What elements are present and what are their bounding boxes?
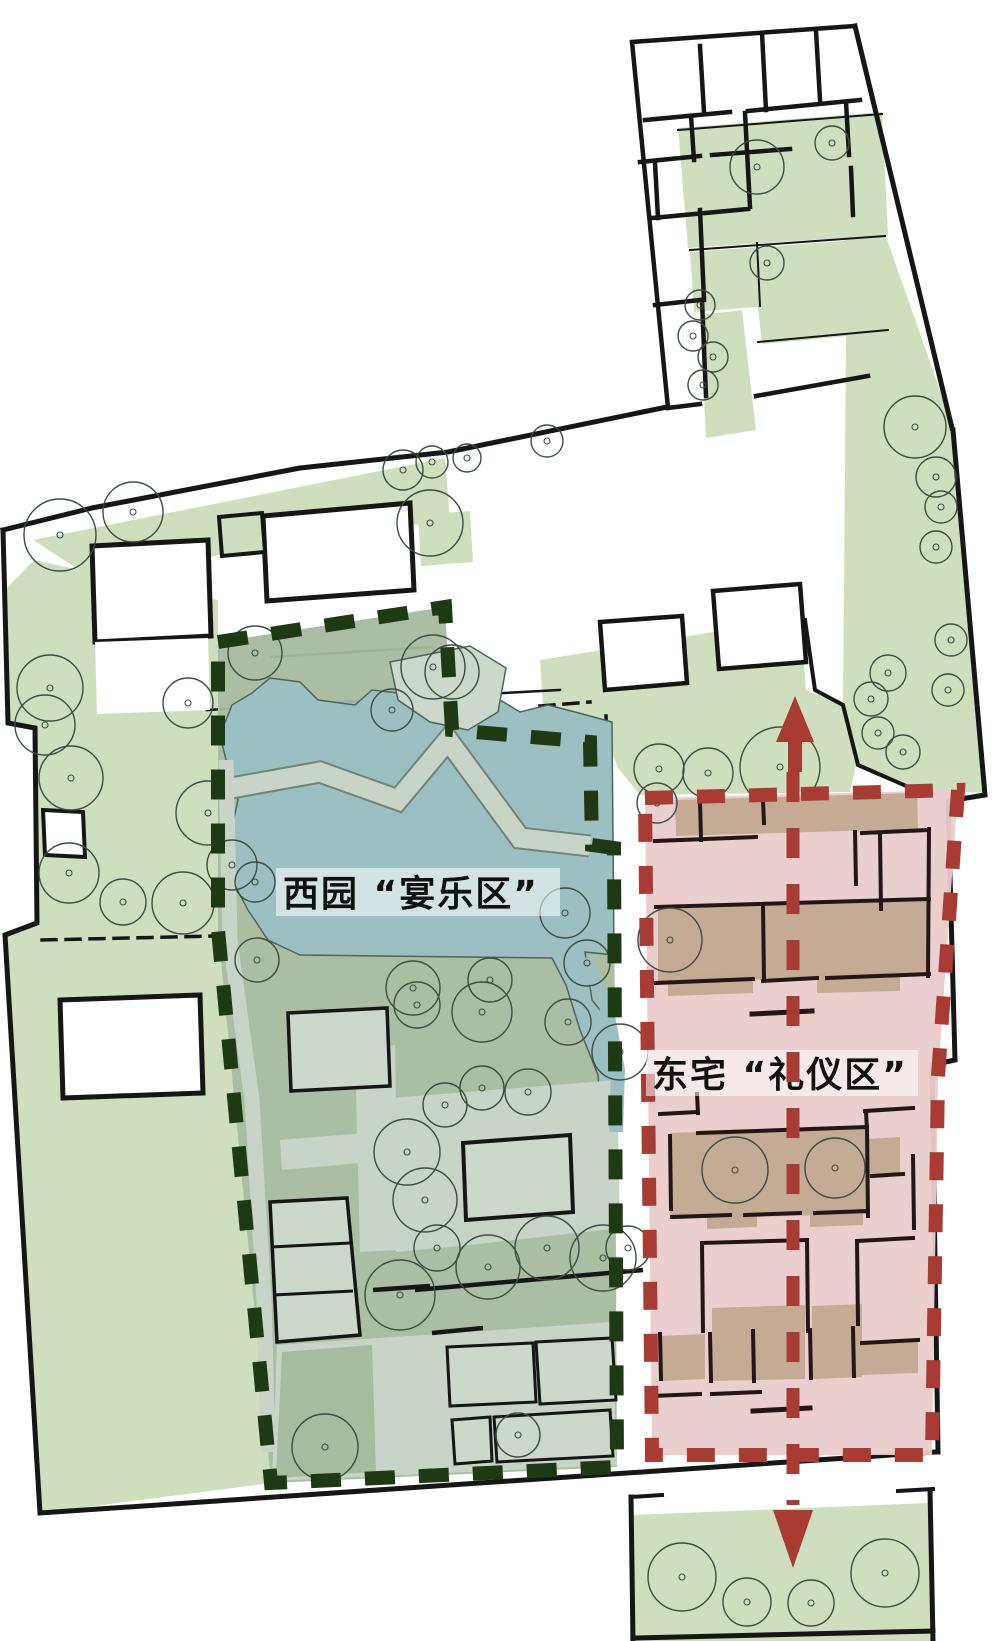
east-zone-label: 东宅 “礼仪区” [652,1054,908,1096]
west-zone-label: 西园 “宴乐区” [283,873,539,915]
garden-pavilion [288,1008,390,1091]
south-rooms [447,1338,616,1464]
site-plan: 西园 “宴乐区” 东宅 “礼仪区” [0,0,1000,1641]
west-rooms [270,1198,360,1342]
west-garden-zone: 西园 “宴乐区” [207,607,650,1483]
garden-hall [463,1135,573,1220]
